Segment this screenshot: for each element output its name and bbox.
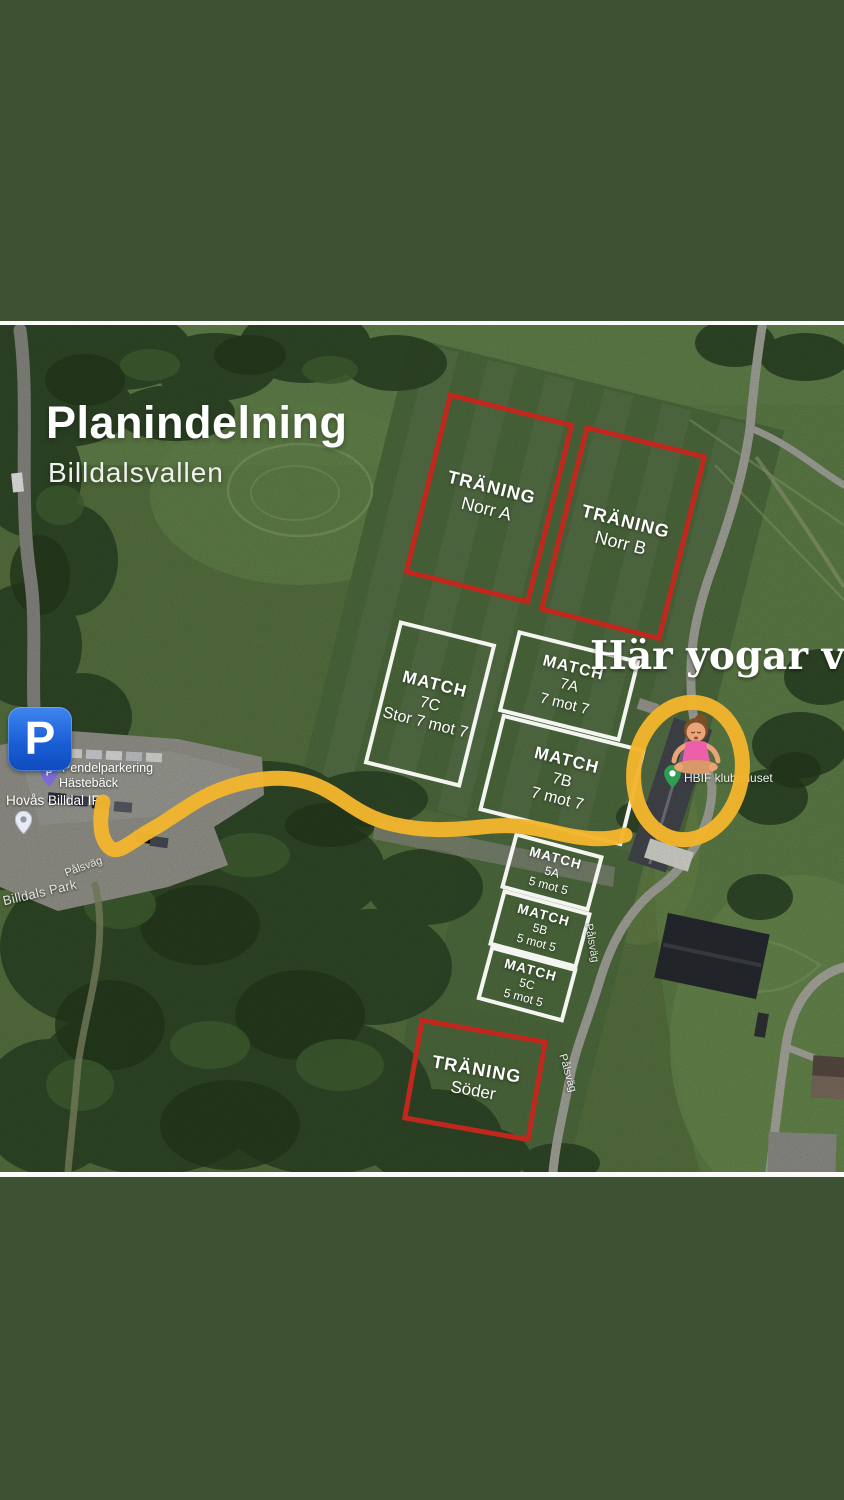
annotation-text: Här yogar vi	[590, 633, 844, 679]
story-screenshot: Planindelning Billdalsvallen TRÄNING Nor…	[0, 0, 844, 1500]
field-detail: 5 mot 5	[527, 874, 569, 898]
field-detail: 5 mot 5	[515, 931, 557, 955]
satellite-map: Planindelning Billdalsvallen TRÄNING Nor…	[0, 321, 844, 1177]
club-label: Hovås Billdal IF	[6, 793, 100, 808]
page-subtitle: Billdalsvallen	[48, 457, 348, 489]
yoga-emoji-icon	[664, 713, 728, 779]
parking-label-line2: Hästebäck	[59, 776, 118, 790]
club-pin-icon	[15, 811, 32, 834]
parking-label-line1: Pendelparkering	[62, 761, 153, 775]
story-bottom-frame	[0, 1177, 844, 1500]
page-title: Planindelning	[46, 397, 348, 449]
map-title-block: Planindelning Billdalsvallen	[46, 397, 348, 489]
field-traning-soder: TRÄNING Söder	[402, 1018, 548, 1143]
parking-emoji-icon: P	[8, 707, 72, 771]
field-detail: 5 mot 5	[502, 986, 544, 1010]
story-top-frame	[0, 0, 844, 321]
parking-emoji-letter: P	[25, 715, 56, 764]
